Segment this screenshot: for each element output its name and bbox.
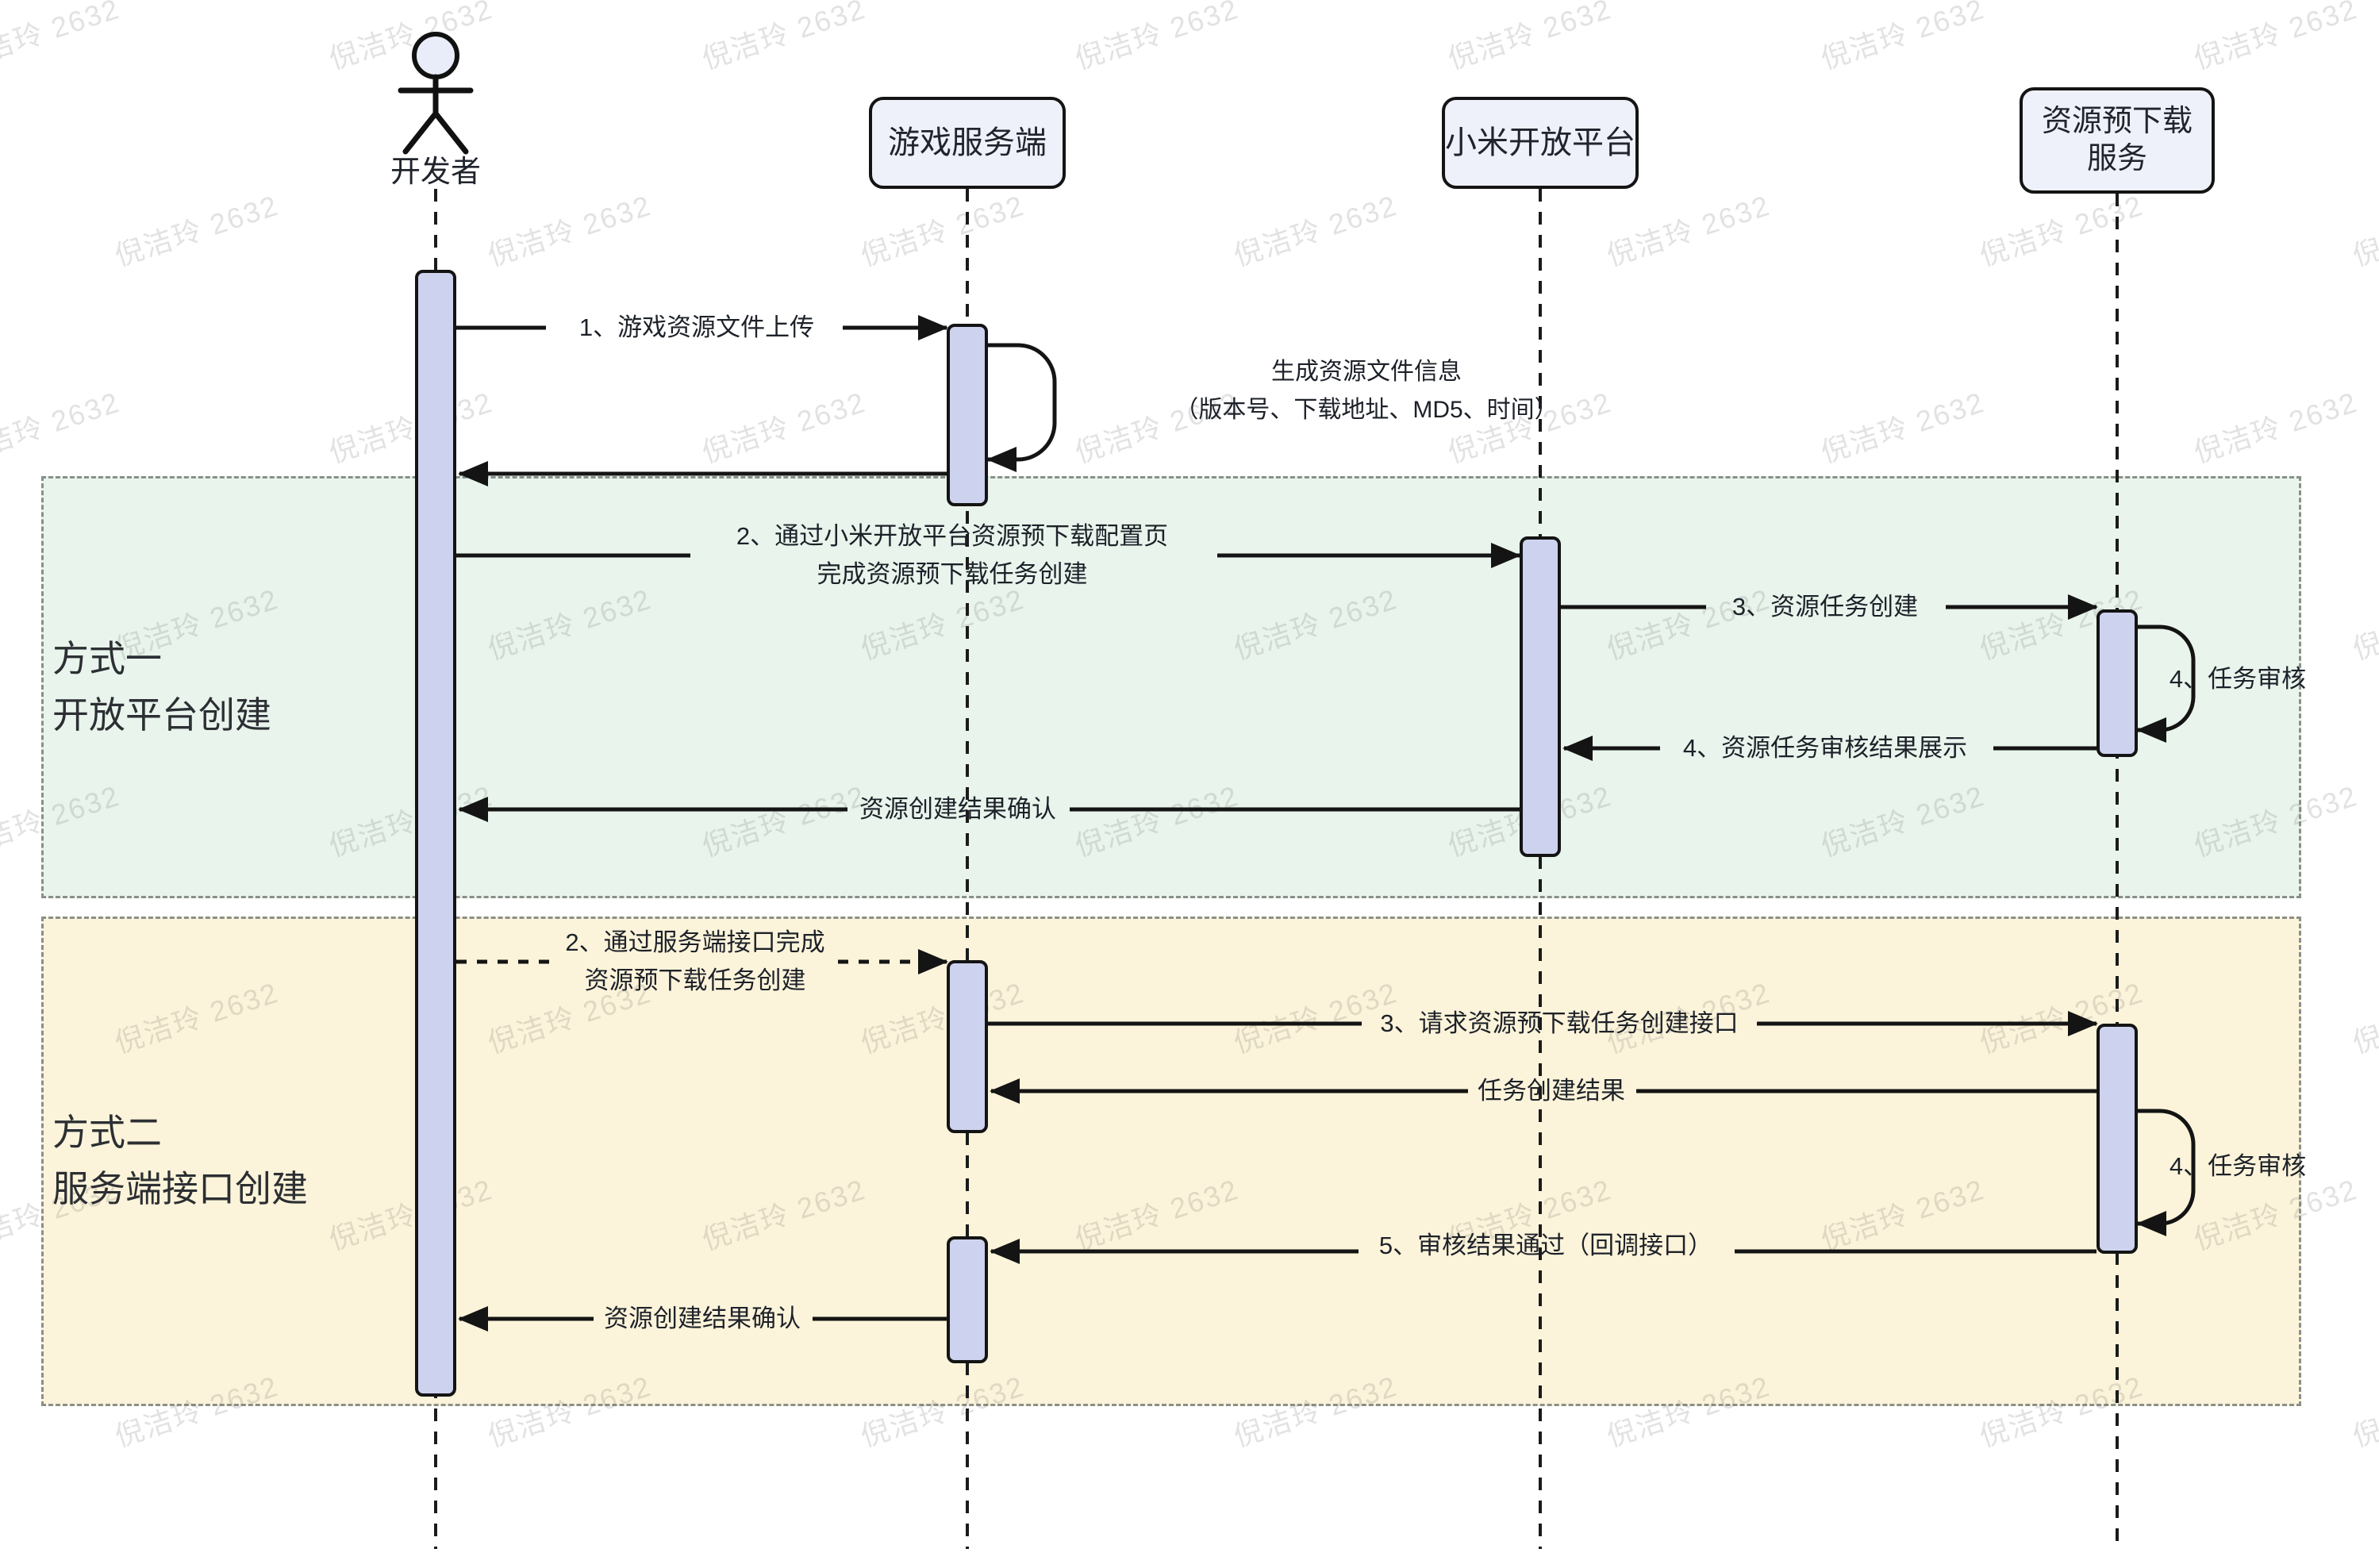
method1-title: 方式一 开放平台创建	[52, 631, 271, 744]
note-file-info-line2: （版本号、下载地址、MD5、时间）	[1174, 391, 1558, 429]
message-create-result-label: 任务创建结果	[1478, 1072, 1625, 1110]
message-api-create-line1: 2、通过服务端接口完成	[565, 924, 824, 962]
activation-predownload-2	[2097, 1024, 2138, 1254]
message-platform-create-line2: 完成资源预下载任务创建	[736, 555, 1168, 594]
participant-predownload-service: 资源预下载 服务	[2020, 87, 2215, 194]
participant-developer-label: 开发者	[390, 147, 481, 190]
method1-title-line2: 开放平台创建	[52, 687, 271, 744]
developer-actor-icon	[401, 34, 471, 152]
message-confirm-method2-label: 资源创建结果确认	[604, 1300, 801, 1338]
message-review-label-method2: 4、任务审核	[2170, 1147, 2306, 1186]
note-file-info-line1: 生成资源文件信息	[1174, 353, 1558, 391]
participant-predownload-service-label-line2: 服务	[2087, 140, 2147, 179]
message-callback-label: 5、审核结果通过（回调接口）	[1379, 1227, 1712, 1265]
message-api-create-line2: 资源预下载任务创建	[565, 962, 824, 1000]
method2-title: 方式二 服务端接口创建	[52, 1105, 308, 1218]
message-platform-create-label: 2、通过小米开放平台资源预下载配置页 完成资源预下载任务创建	[736, 517, 1168, 594]
activation-developer	[415, 270, 456, 1397]
message-review-result-label: 4、资源任务审核结果展示	[1683, 729, 1967, 767]
connector-layer	[0, 0, 2379, 1568]
sequence-diagram: 倪洁玲 2632倪洁玲 2632倪洁玲 2632倪洁玲 2632倪洁玲 2632…	[0, 0, 2379, 1568]
message-confirm-method1-label: 资源创建结果确认	[859, 790, 1056, 828]
participant-xiaomi-platform-label: 小米开放平台	[1445, 123, 1635, 163]
message-api-create-label: 2、通过服务端接口完成 资源预下载任务创建	[565, 924, 824, 1000]
message-platform-create-line1: 2、通过小米开放平台资源预下载配置页	[736, 517, 1168, 555]
activation-game-server-3	[947, 1236, 988, 1363]
participant-game-server: 游戏服务端	[869, 97, 1066, 189]
participant-predownload-service-label-line1: 资源预下载	[2042, 103, 2193, 141]
message-request-api-label: 3、请求资源预下载任务创建接口	[1380, 1005, 1738, 1043]
participant-xiaomi-platform: 小米开放平台	[1442, 97, 1639, 189]
method1-title-line1: 方式一	[52, 631, 271, 687]
activation-game-server-1	[947, 324, 988, 506]
activation-game-server-2	[947, 960, 988, 1133]
message-upload-label: 1、游戏资源文件上传	[579, 309, 814, 347]
activation-xiaomi-platform	[1520, 536, 1561, 857]
game-server-self-loop	[988, 345, 1055, 459]
participant-game-server-label: 游戏服务端	[888, 123, 1047, 163]
method2-title-line1: 方式二	[52, 1105, 308, 1161]
activation-predownload-1	[2097, 609, 2138, 757]
message-task-create-label: 3、资源任务创建	[1732, 588, 1918, 626]
message-review-label-method1: 4、任务审核	[2170, 660, 2306, 698]
method2-title-line2: 服务端接口创建	[52, 1161, 308, 1217]
note-file-info: 生成资源文件信息 （版本号、下载地址、MD5、时间）	[1174, 353, 1558, 429]
